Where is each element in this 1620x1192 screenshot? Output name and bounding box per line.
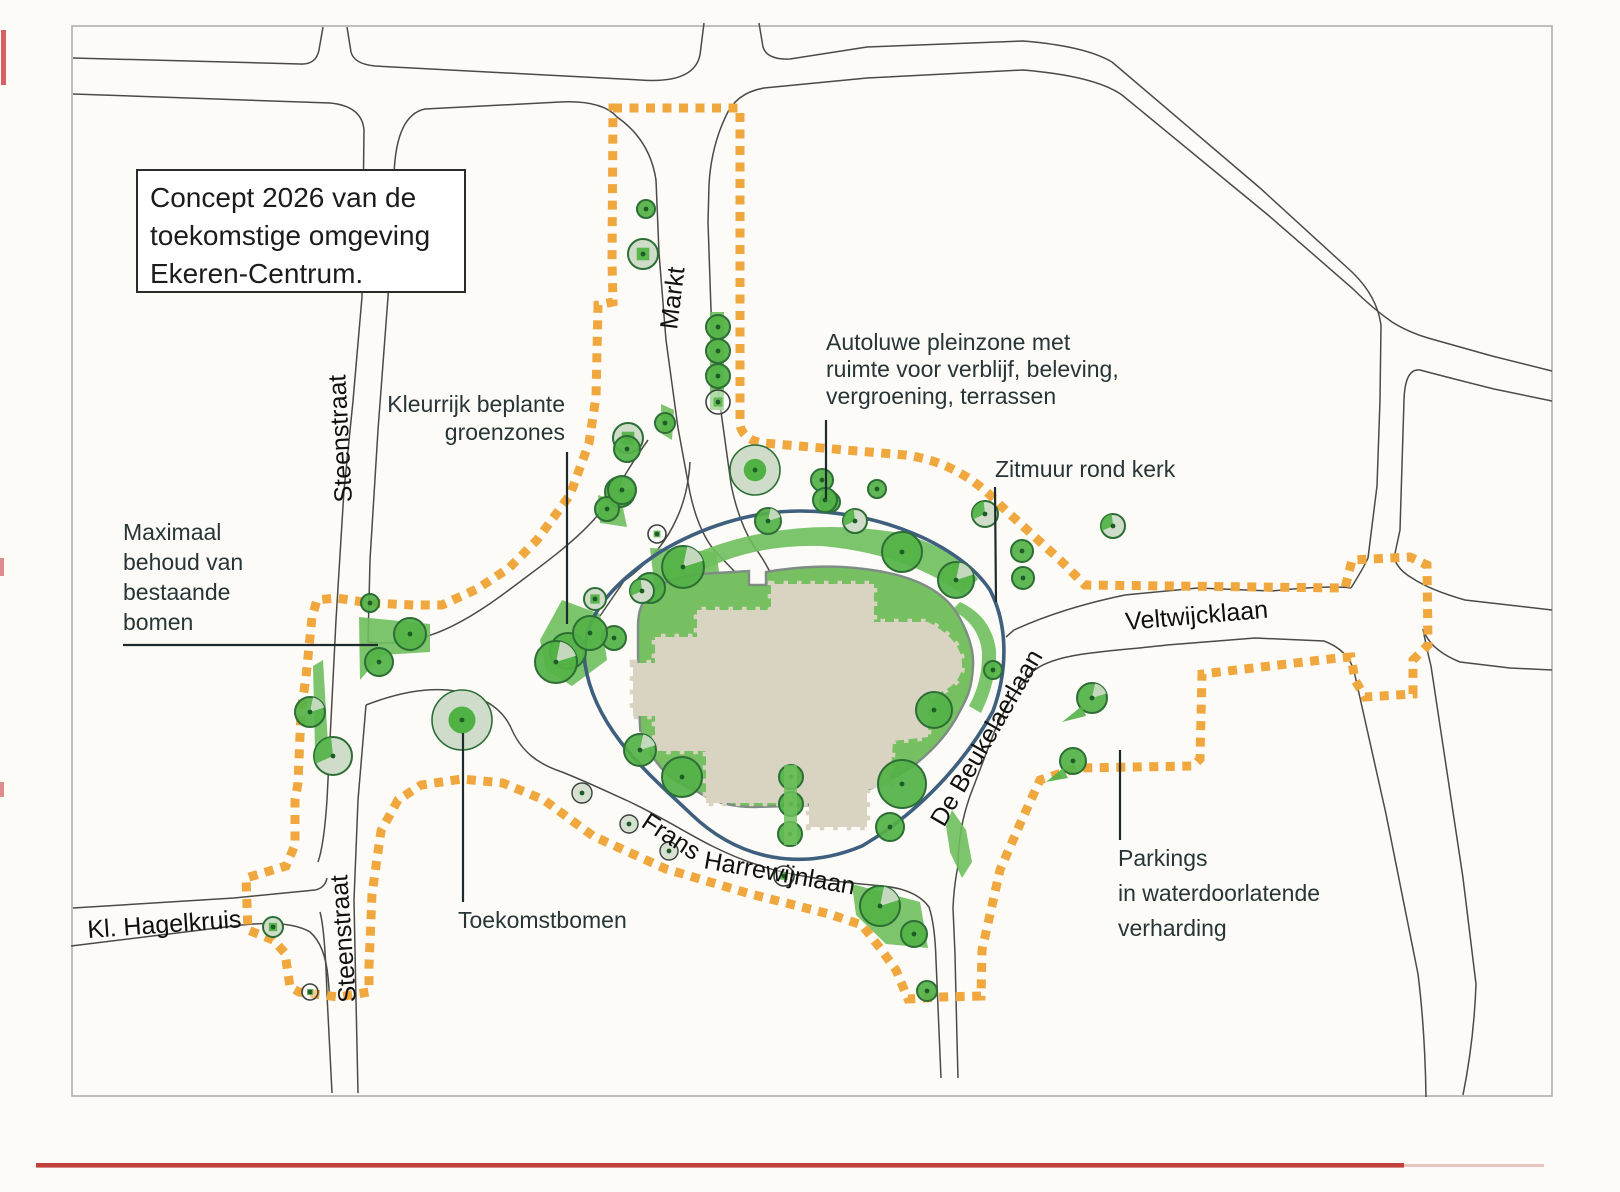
svg-text:behoud van: behoud van <box>123 549 243 575</box>
svg-text:Autoluwe pleinzone met: Autoluwe pleinzone met <box>826 329 1071 355</box>
svg-text:bomen: bomen <box>123 609 193 635</box>
svg-text:in waterdoorlatende: in waterdoorlatende <box>1118 880 1320 906</box>
svg-text:vergroening, terrassen: vergroening, terrassen <box>826 383 1056 409</box>
svg-text:bestaande: bestaande <box>123 579 230 605</box>
svg-text:Kleurrijk beplante: Kleurrijk beplante <box>387 391 565 417</box>
svg-text:ruimte voor verblijf, beleving: ruimte voor verblijf, beleving, <box>826 356 1119 382</box>
svg-text:groenzones: groenzones <box>445 419 565 445</box>
svg-text:Maximaal: Maximaal <box>123 519 221 545</box>
svg-text:verharding: verharding <box>1118 915 1227 941</box>
svg-text:Ekeren-Centrum.: Ekeren-Centrum. <box>150 258 363 289</box>
svg-text:Concept 2026 van de: Concept 2026 van de <box>150 182 416 213</box>
svg-text:toekomstige omgeving: toekomstige omgeving <box>150 220 430 251</box>
svg-text:Toekomstbomen: Toekomstbomen <box>458 907 627 933</box>
svg-text:Parkings: Parkings <box>1118 845 1207 871</box>
svg-text:Zitmuur rond kerk: Zitmuur rond kerk <box>995 456 1176 482</box>
